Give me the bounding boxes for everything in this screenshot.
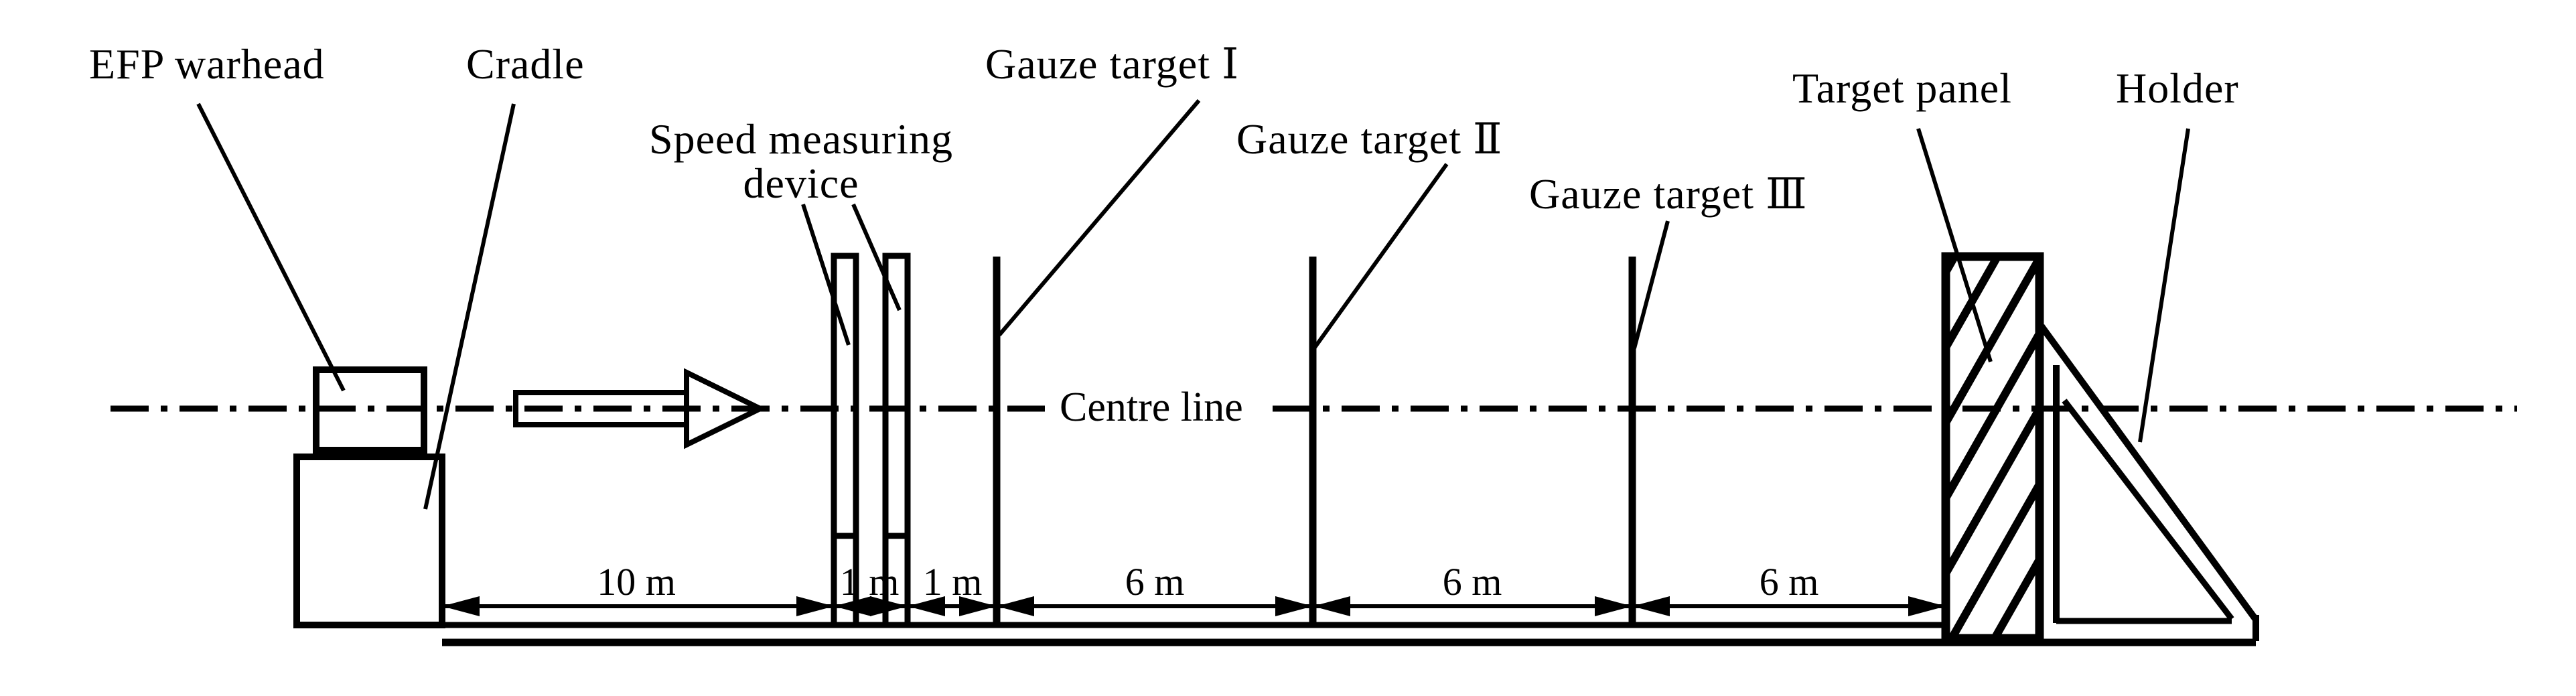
leader-lines (198, 100, 2188, 509)
label-speed-device-line2: device (743, 162, 859, 205)
label-gauze-target-1: Gauze target Ⅰ (985, 43, 1239, 86)
leader-holder (2140, 129, 2188, 442)
leader-speed-screen-1 (803, 204, 849, 345)
leader-gauze-target-2 (1314, 164, 1447, 348)
dimension-label-6m-b: 6 m (1443, 563, 1502, 602)
label-efp-warhead: EFP warhead (89, 43, 325, 86)
leader-efp-warhead (198, 104, 344, 391)
leader-gauze-target-1 (999, 100, 1199, 335)
label-gauze-target-3: Gauze target Ⅲ (1529, 173, 1808, 216)
cradle-box (297, 457, 442, 625)
label-holder: Holder (2116, 67, 2239, 110)
dimension-label-1m-a: 1 m (840, 563, 900, 602)
holder-outer-hypotenuse (2042, 326, 2256, 620)
dimension-label-10m: 10 m (597, 563, 676, 602)
holder-inner-hypotenuse (2064, 401, 2232, 619)
label-speed-device-line1: Speed measuring (649, 118, 953, 161)
efp-test-setup-diagram: EFP warhead Cradle Speed measuring devic… (0, 0, 2576, 696)
dimension-label-6m-c: 6 m (1760, 563, 1819, 602)
label-centre-line: Centre line (1060, 387, 1243, 428)
dimension-label-6m-a: 6 m (1125, 563, 1185, 602)
label-gauze-target-2: Gauze target Ⅱ (1236, 118, 1502, 161)
leader-cradle (425, 104, 514, 509)
dimension-label-1m-b: 1 m (923, 563, 983, 602)
label-target-panel: Target panel (1792, 67, 2012, 110)
label-cradle: Cradle (466, 43, 585, 86)
leader-gauze-target-3 (1634, 221, 1668, 348)
